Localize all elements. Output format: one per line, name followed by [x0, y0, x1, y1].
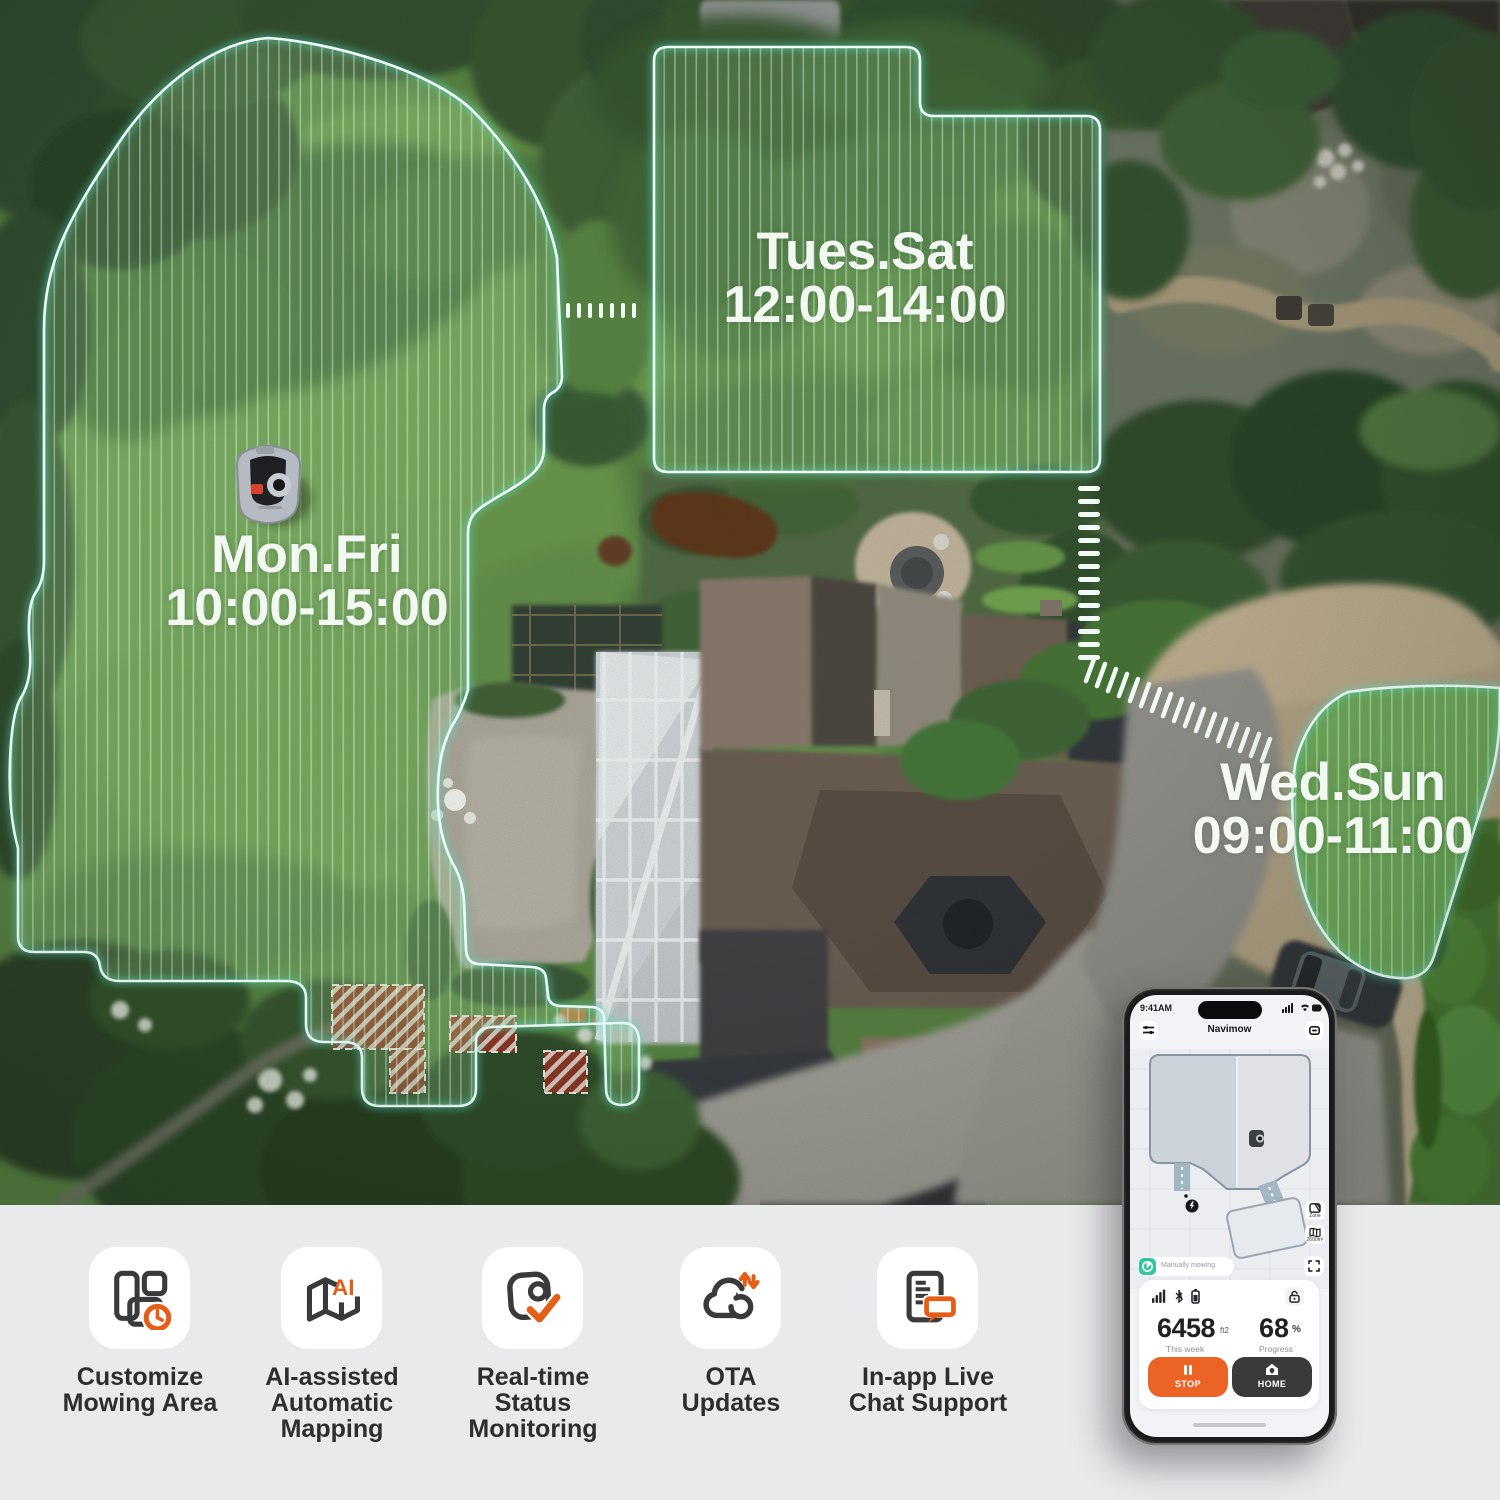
svg-text:AI: AI	[332, 1275, 355, 1300]
